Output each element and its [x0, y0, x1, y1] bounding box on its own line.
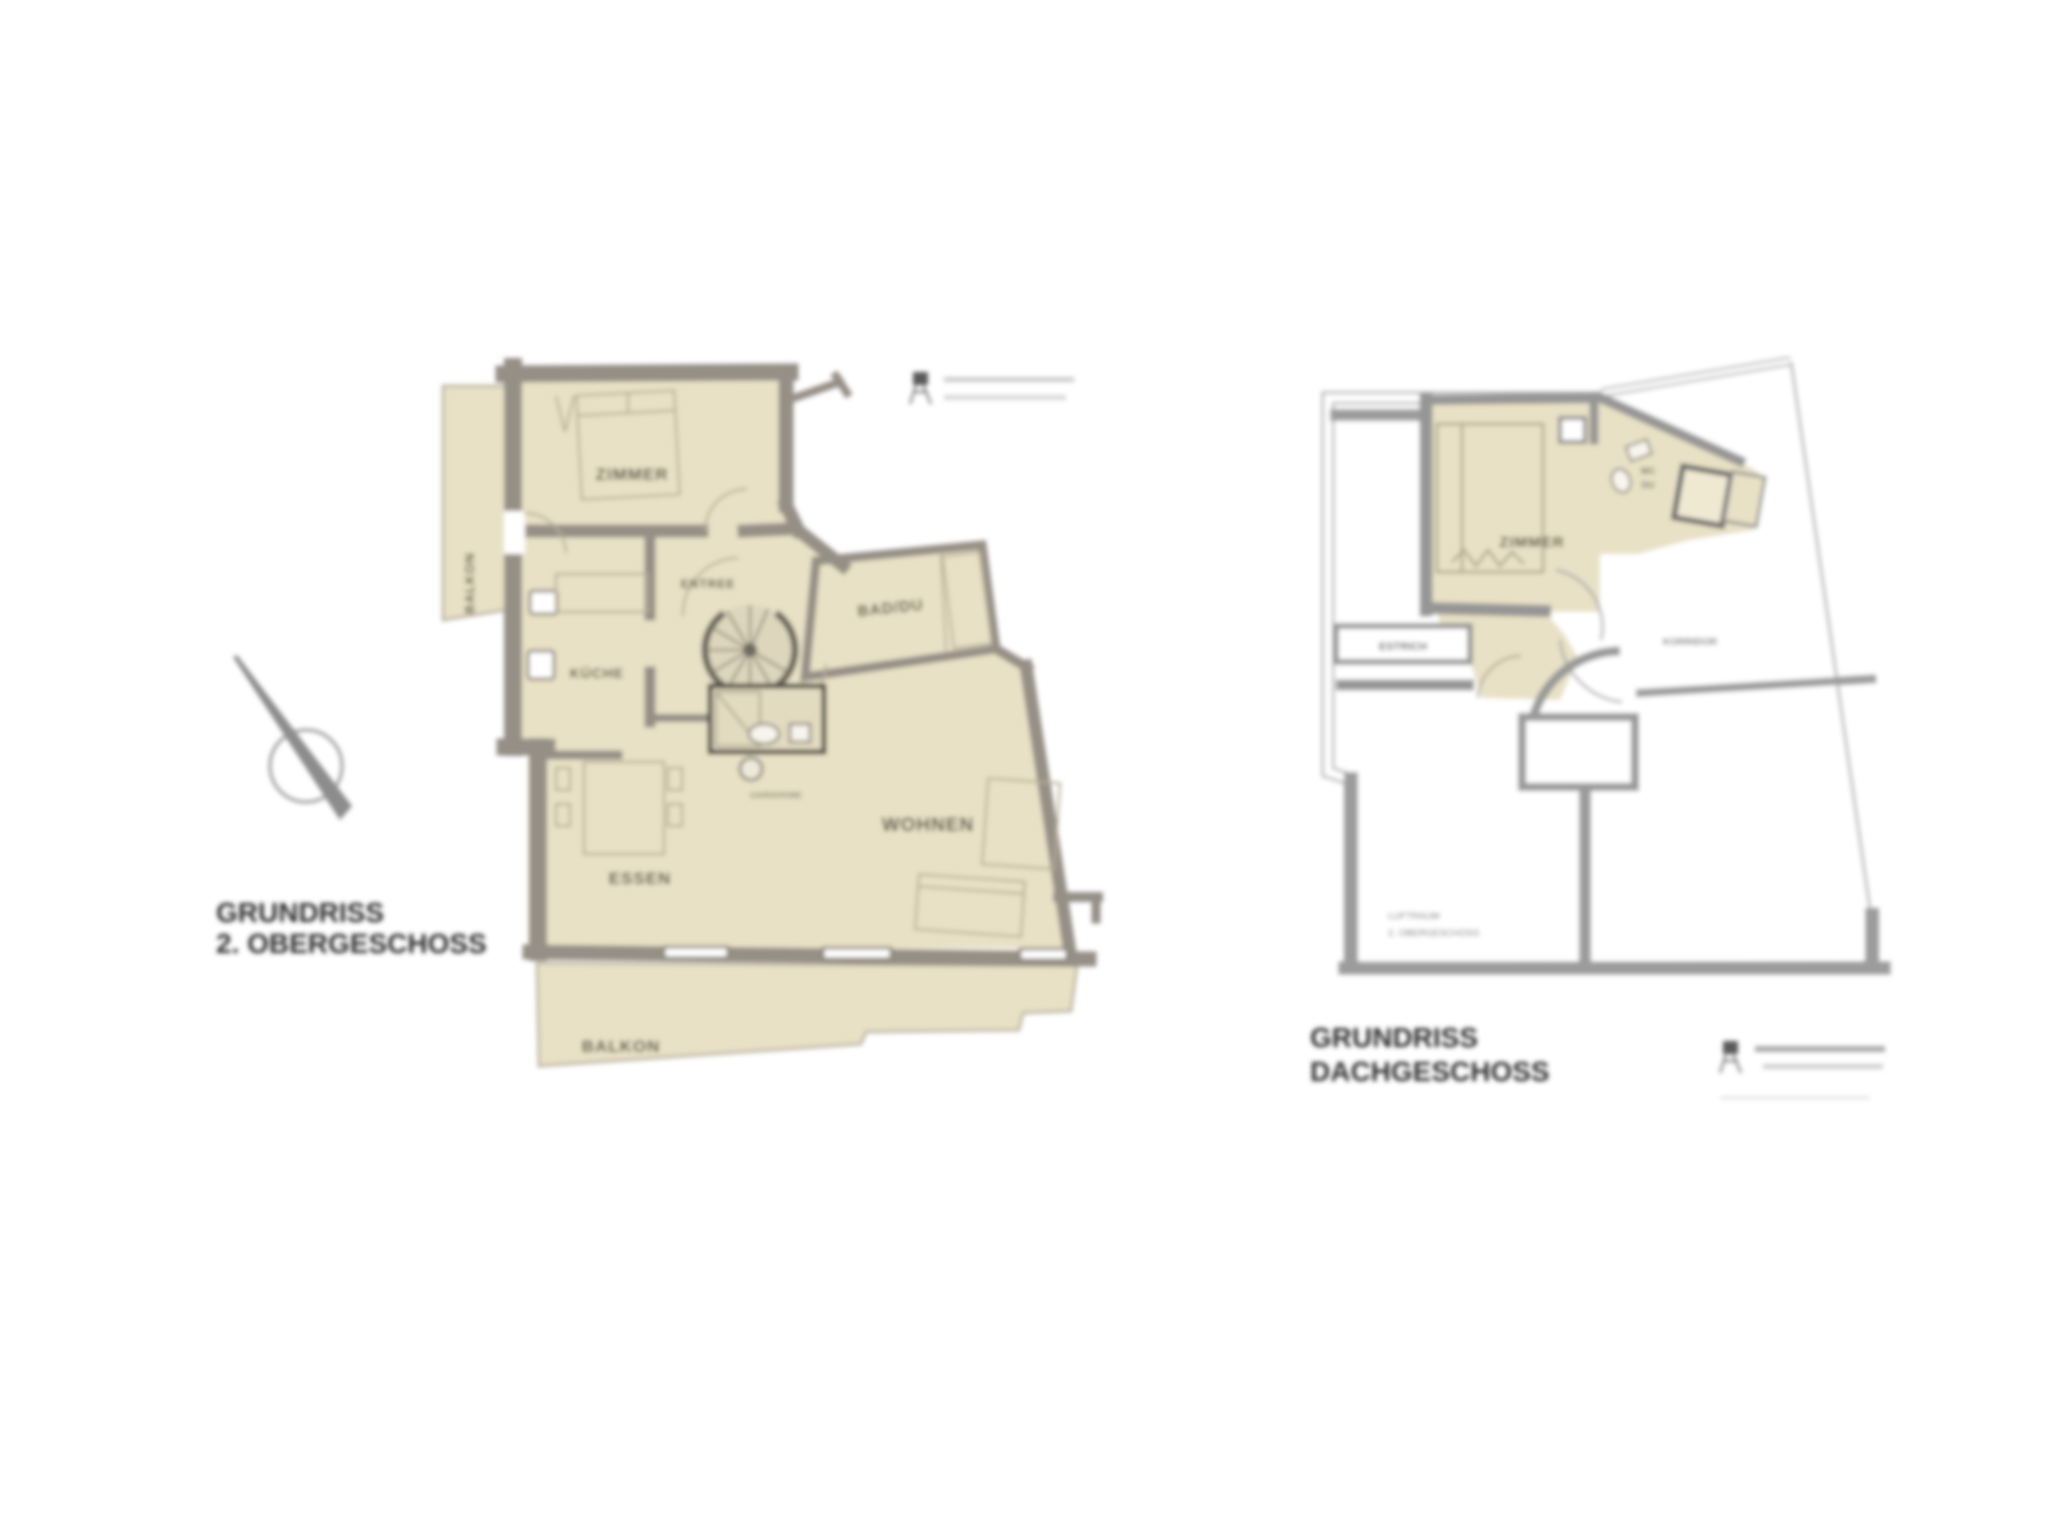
- svg-text:DU: DU: [1642, 480, 1655, 490]
- svg-text:KORRIDOR: KORRIDOR: [1663, 637, 1718, 648]
- svg-text:GRUNDRISS: GRUNDRISS: [1310, 1022, 1478, 1053]
- svg-text:2. OBERGESCHOSS: 2. OBERGESCHOSS: [216, 928, 487, 959]
- svg-text:WC: WC: [1641, 466, 1656, 476]
- svg-text:GARDEROBE: GARDEROBE: [750, 791, 803, 800]
- svg-text:ZIMMER: ZIMMER: [1499, 534, 1564, 551]
- svg-text:ENTREE: ENTREE: [681, 577, 736, 591]
- svg-text:DACHGESCHOSS: DACHGESCHOSS: [1310, 1056, 1550, 1087]
- svg-text:2. OBERGESCHOSS: 2. OBERGESCHOSS: [1388, 928, 1479, 939]
- svg-text:ESTRICH: ESTRICH: [1379, 641, 1427, 653]
- svg-text:ZIMMER: ZIMMER: [595, 465, 668, 484]
- svg-text:BALKON: BALKON: [462, 552, 477, 614]
- svg-text:WOHNEN: WOHNEN: [882, 815, 975, 836]
- svg-text:GRUNDRISS: GRUNDRISS: [216, 897, 384, 928]
- svg-text:LUFTRAUM: LUFTRAUM: [1388, 911, 1440, 922]
- svg-text:BALKON: BALKON: [582, 1037, 661, 1056]
- svg-text:KÜCHE: KÜCHE: [570, 665, 625, 681]
- svg-text:ESSEN: ESSEN: [609, 869, 672, 888]
